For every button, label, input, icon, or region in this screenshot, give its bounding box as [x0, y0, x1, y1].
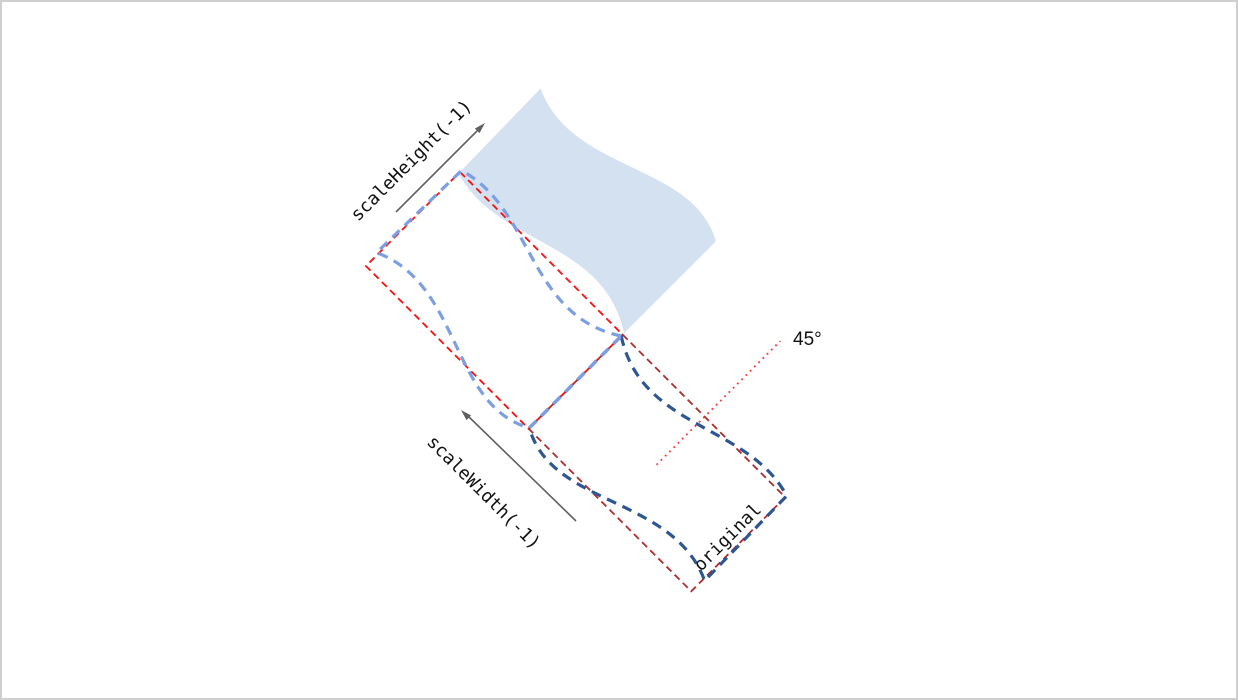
scale-width-label: scaleWidth(-1) — [422, 432, 544, 554]
scale-height-label: scaleHeight(-1) — [347, 96, 477, 226]
shape-transform-diagram: scaleHeight(-1) scaleWidth(-1) original … — [2, 2, 1236, 698]
original-bounds-box — [529, 335, 786, 592]
canvas-page: scaleHeight(-1) scaleWidth(-1) original … — [0, 0, 1238, 700]
angle-label: 45° — [793, 329, 822, 350]
original-label: original — [690, 499, 766, 575]
scale-width-arrow-icon — [461, 410, 576, 521]
result-shape-fill — [454, 70, 723, 339]
rotation-angle-line — [657, 341, 781, 465]
